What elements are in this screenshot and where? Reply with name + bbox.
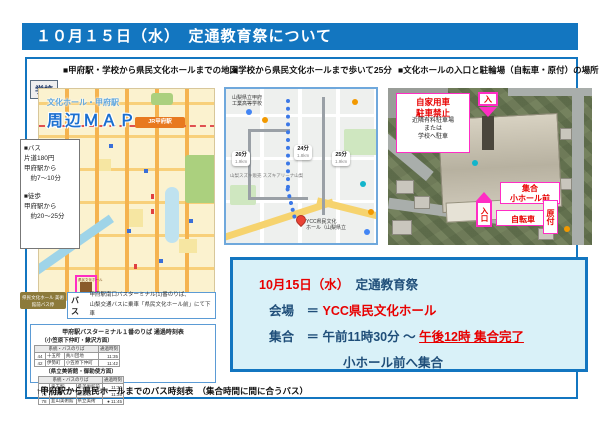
meet-time-row: 集合 ＝ 午前11時30分 ～ 午後12時 集合完了 — [259, 326, 585, 345]
page-title: １０月１５日（水） 定通教育祭について — [22, 23, 578, 50]
bus-callout: バス 甲府駅南口バスターミナル(1)番のりば、 山梨交通バスに乗車「県民文化ホー… — [67, 292, 216, 319]
timetable-group-name: （小笠原下仲町・鰍沢方面） — [34, 336, 120, 344]
info-line: 甲府駅から — [24, 164, 76, 174]
info-line: 甲府駅から — [24, 202, 76, 212]
event-date: 10月15日（水） — [259, 278, 343, 292]
timetable-title: 甲府駅バスターミナル１番のりば 通過時刻表 — [34, 327, 212, 336]
cell: 県立美術 — [76, 398, 103, 405]
road — [508, 88, 592, 96]
enter-arrow-down-icon — [479, 107, 497, 117]
landmark-label: 山梨スズキ販売 スズキアリーナ山梨 — [230, 173, 303, 179]
timetable-col-header: 通過時刻 — [99, 346, 120, 353]
cell: 11:42 — [99, 360, 120, 367]
venue-value: YCC県民文化ホール — [322, 304, 436, 318]
alt-route-gray — [248, 129, 290, 132]
cell: 伊勢町 — [46, 360, 65, 367]
house — [414, 196, 430, 209]
event-name: 定通教育祭 — [343, 278, 418, 292]
map-marker — [109, 144, 113, 148]
map-marker — [134, 264, 137, 269]
cell: 78 — [39, 398, 50, 405]
destination-label: YCC県民文化 ホール（山梨県立 — [306, 219, 346, 232]
entrance-label: 入口 — [480, 207, 489, 222]
info-line: ■徒歩 — [24, 192, 76, 202]
cell: 11:35 — [99, 353, 120, 360]
no-parking-notice: 自家用車 駐車禁止 近隣有料駐車場 または 学校へ駐車 — [396, 93, 470, 153]
bus-timetable: 甲府駅バスターミナル１番のりば 通過時刻表 （小笠原下仲町・鰍沢方面） 系統・バ… — [30, 324, 216, 383]
route-time-bubble: 25分 1.9km — [332, 151, 350, 166]
poi-pin — [352, 99, 358, 105]
meet-label: 集合 ＝ — [269, 330, 322, 344]
map-pin — [564, 226, 570, 232]
entrance-label-box: 入口 — [476, 201, 492, 227]
map-marker — [189, 219, 193, 223]
document-page: １０月１５日（水） 定通教育祭について ■甲府駅・学校から県民文化ホールまでの地… — [0, 0, 600, 424]
map-marker — [144, 169, 148, 173]
timetable-group-name: （県立美術館・御勅使方面） — [38, 367, 124, 375]
section-header-left: ■甲府駅・学校から県民文化ホールまでの地図 — [63, 64, 238, 76]
enter-arrow-label: 入 — [478, 92, 498, 106]
table-row: 42 伊勢町 小笠原下仲町 11:42 — [35, 360, 120, 367]
no-parking-line4: または — [397, 126, 469, 134]
city-block — [179, 239, 197, 253]
bus-callout-line1: 甲府駅南口バスターミナル(1)番のりば、 — [90, 292, 190, 298]
section-header-middle: ■学校から県民文化ホールまで歩いて25分 — [233, 64, 392, 76]
info-line — [24, 184, 76, 192]
table-row: 44 十五所 貢川団地 11:35 — [35, 353, 120, 360]
map-marker — [151, 209, 154, 214]
timetable-col-header: 通過時刻 — [103, 377, 124, 384]
entrance-arrow-up-icon — [476, 192, 492, 201]
destination-line2: ホール（山梨県立 — [306, 225, 346, 231]
cell: 44 — [35, 353, 46, 360]
house — [396, 180, 414, 194]
school-map-label: 山梨県立甲府 工業高等学校 — [232, 95, 262, 108]
moped-parking-label: 原付 — [543, 200, 558, 234]
walk-route-map-image: 山梨県立甲府 工業高等学校 26分 1.9km 24分 1.8km 25分 1.… — [224, 87, 378, 245]
venue-row: 会場 ＝ YCC県民文化ホール — [259, 300, 585, 319]
route-distance: 1.9km — [335, 159, 347, 165]
station-label: JR甲府駅 — [135, 117, 185, 128]
poi-pin — [262, 117, 268, 123]
busstop-label: 県民文化ホール 美術館前バス停 — [20, 292, 66, 309]
cell: 小笠原下仲町 — [64, 360, 98, 367]
city-block — [99, 159, 111, 171]
timetable-col-header: 系統・バスのりば — [39, 377, 103, 384]
route-distance: 1.9km — [235, 159, 247, 165]
event-info-box: 10月15日（水） 定通教育祭 会場 ＝ YCC県民文化ホール 集合 ＝ 午前1… — [230, 257, 588, 372]
aerial-photo: 自家用車 駐車禁止 近隣有料駐車場 または 学校へ駐車 入 集合 小ホール前 入… — [388, 88, 592, 245]
info-line: 約20～25分 — [24, 212, 76, 222]
route-distance: 1.8km — [297, 153, 309, 159]
bus-walk-info-box: ■バス 片道180円 甲府駅から 約7～10分 ■徒歩 甲府駅から 約20～25… — [20, 139, 80, 249]
info-line: ■バス — [24, 144, 76, 154]
bus-callout-text: 甲府駅南口バスターミナル(1)番のりば、 山梨交通バスに乗車「県民文化ホール前」… — [90, 291, 213, 319]
bus-callout-tag: バス — [71, 295, 87, 317]
map-title-main: 周辺ＭＡＰ — [47, 107, 137, 131]
house — [560, 128, 572, 140]
building-entry-gap — [482, 116, 494, 150]
cell: ● 11:45 — [103, 398, 124, 405]
map-marker — [159, 259, 163, 263]
venue-label: 会場 ＝ — [269, 304, 322, 318]
alt-route-gray — [248, 197, 308, 200]
timetable-caption: ↑甲府駅から県民ホールまでのバス時刻表 （集合時間に間に合うバス） — [36, 385, 308, 397]
meet-time-start: 午前11時30分 ～ — [322, 330, 419, 344]
cell: 韮山美術館 — [50, 398, 77, 405]
no-parking-line5: 学校へ駐車 — [397, 134, 469, 142]
bus-callout-line2: 山梨交通バスに乗車「県民文化ホール前」にて下車 — [90, 302, 211, 317]
enter-label: 入 — [484, 95, 492, 104]
poi-pin — [246, 109, 252, 115]
bicycle-parking-label: 自転車 — [496, 210, 550, 226]
pond-area — [165, 187, 179, 243]
route-time: 26分 — [235, 152, 247, 158]
bicycle-label: 自転車 — [511, 215, 535, 224]
event-title-row: 10月15日（水） 定通教育祭 — [259, 274, 585, 293]
poi-pin — [360, 181, 366, 187]
timetable-left-group: （小笠原下仲町・鰍沢方面） 系統・バスのりば 通過時刻 44 十五所 貢川団地 … — [34, 336, 120, 367]
map-marker — [151, 194, 154, 199]
route-time: 24分 — [297, 146, 309, 152]
road — [572, 88, 584, 245]
city-block — [129, 209, 143, 227]
route-time: 25分 — [335, 152, 347, 158]
gather-line1: 集合 — [501, 184, 559, 194]
school-label-line2: 工業高等学校 — [232, 101, 262, 107]
alt-route-gray — [322, 97, 325, 215]
moped-label: 原付 — [546, 209, 555, 225]
map-pin — [472, 160, 478, 166]
info-line: 片道180円 — [24, 154, 76, 164]
meet-place: 小ホール前へ集合 — [343, 356, 443, 370]
table-row: 78 韮山美術館 県立美術 ● 11:45 — [39, 398, 124, 405]
no-parking-line3: 近隣有料駐車場 — [397, 118, 469, 126]
meet-time-deadline: 午後12時 集合完了 — [419, 330, 524, 344]
no-parking-line2: 駐車禁止 — [397, 108, 469, 119]
house — [392, 220, 412, 235]
cell: 貢川団地 — [64, 353, 98, 360]
route-time-bubble: 24分 1.8km — [294, 145, 312, 160]
park-area — [185, 155, 215, 203]
meet-place-row: 小ホール前へ集合 — [259, 352, 585, 371]
cell: 十五所 — [46, 353, 65, 360]
green-area — [230, 185, 256, 205]
info-line: 約7～10分 — [24, 174, 76, 184]
route-time-bubble: 26分 1.9km — [232, 151, 250, 166]
no-parking-line1: 自家用車 — [397, 97, 469, 108]
cell: 42 — [35, 360, 46, 367]
poi-pin — [364, 229, 370, 235]
timetable-col-header: 系統・バスのりば — [35, 346, 99, 353]
poi-pin — [368, 209, 374, 215]
map-marker — [127, 229, 131, 233]
section-header-right: ■文化ホールの入口と駐輪場（自転車・原付）の場所 — [398, 64, 599, 76]
park-area — [151, 93, 173, 105]
